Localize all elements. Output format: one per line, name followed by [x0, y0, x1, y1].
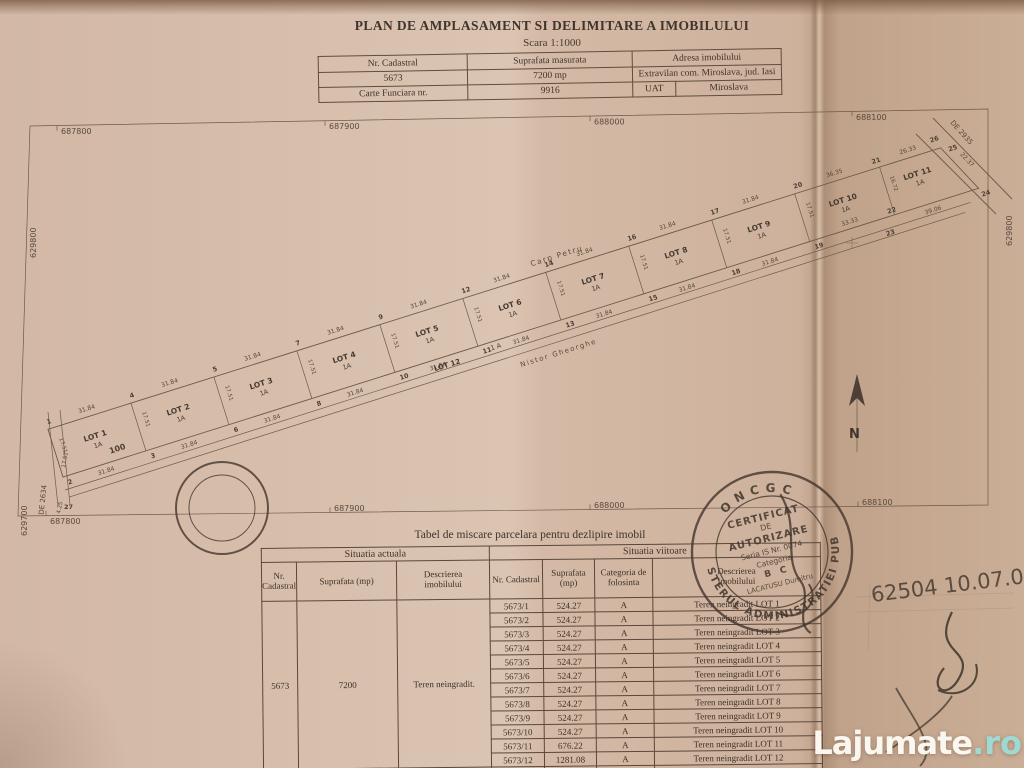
empty-cell [655, 764, 823, 768]
dim-label: 17.51 [223, 385, 233, 402]
neighbor-bottom-label: Nistor Gheorghe [519, 337, 598, 369]
grid-cross [846, 237, 858, 249]
point-label: 6 [233, 425, 240, 434]
point-label: 22 [886, 205, 897, 215]
cell-nr: 5673/10 [491, 724, 544, 739]
point-label: 1 [46, 417, 53, 426]
cell-cat: A [596, 723, 654, 738]
watermark-brand: Lajumate [812, 724, 972, 762]
cell-area: 524.27 [544, 724, 596, 739]
dim-label: 31.84 [658, 220, 677, 232]
stamp-bottom-text: ONCGC [714, 473, 802, 518]
point-label: 23 [885, 228, 896, 238]
stamp-line2: DE [759, 522, 772, 533]
dim-label: 17.51 [804, 202, 814, 219]
cell-nr: 5673/3 [490, 626, 543, 641]
point-label: 19 [814, 241, 825, 251]
point-label: 9 [378, 312, 385, 321]
svg-text:ONCGC: ONCGC [714, 473, 802, 518]
carte-funciara-value: 9916 [468, 82, 633, 100]
watermark: Lajumate.ro [812, 720, 1022, 766]
cell-area: 1281.08 [544, 752, 596, 767]
document-scale: Scara 1:1000 [302, 37, 802, 49]
point-label: 5 [212, 365, 219, 374]
lot-category: 1A [915, 177, 926, 187]
cell-area: 524.27 [544, 710, 596, 725]
lot-8: 16 15 31.84 17.51 LOT 8 1A 31.84 [626, 219, 699, 304]
col-descrierea-actual: Descrierea imobilului [396, 560, 489, 600]
dim-label: 31.84 [326, 325, 345, 337]
dim-label: 17.51 [389, 333, 399, 350]
dim-label: 31.84 [429, 361, 448, 373]
road-lot-cat: 1 A [490, 341, 503, 352]
cell-cat: A [595, 625, 653, 640]
north-label: N [849, 427, 860, 442]
dim-label: 31.84 [180, 439, 199, 451]
current-nr: 5673 [262, 601, 299, 768]
lot-4: 7 8 31.84 17.51 LOT 4 1A 31.84 [295, 324, 368, 409]
cell-cat: A [596, 695, 654, 710]
dim-label: 31.84 [409, 299, 428, 311]
grid-label: 687800 [50, 517, 81, 526]
cell-nr: 5673/4 [490, 640, 543, 655]
point-label: 8 [316, 399, 323, 408]
point-label: 17 [709, 207, 720, 217]
grid-label-right: 629800 [1005, 215, 1014, 246]
dim-label: 31.84 [243, 351, 262, 363]
dim-label: 31.84 [741, 194, 760, 206]
cell-area: 524.27 [544, 668, 596, 683]
north-arrow: N [849, 374, 865, 452]
faint-stamp [176, 462, 268, 554]
lot-category: 1A [840, 204, 851, 214]
lot-category: 1A [508, 309, 519, 319]
lot-1: 1 2 31.84 17.51 LOT 1 1A 31.84 100 [46, 398, 133, 487]
lot-name: LOT 9 [746, 219, 771, 235]
carte-funciara-label: Carte Funciara nr. [319, 85, 468, 103]
cell-area: 524.27 [544, 696, 596, 711]
road-right-label: DE 2935 [949, 119, 975, 147]
cell-cat: A [595, 597, 653, 612]
lot-9: 17 18 31.84 17.51 LOT 9 1A 31.84 [709, 193, 782, 278]
road-left-label: DE 2634 [37, 484, 48, 515]
lot-11: 21 26 25 22 23 24 26.33 LOT 11 1A 39.06 … [862, 124, 995, 238]
grid-label: 687900 [334, 504, 365, 513]
lot-name: LOT 4 [331, 350, 356, 366]
lot-6: 12 11 31.84 17.51 LOT 6 1A 31.84 [460, 272, 533, 357]
grid-label: 687900 [329, 122, 360, 131]
point-label: 15 [648, 293, 659, 303]
cell-nr: 5673/12 [491, 752, 544, 767]
lot-category: 1A [674, 257, 685, 267]
grid-labels-top: 687800 687900 688000 688100 [57, 111, 887, 136]
cell-nr: 5673/1 [490, 598, 543, 613]
col-suprafata-actual: Suprafata (mp) [296, 561, 396, 601]
dim-width: 17.51 [61, 452, 70, 469]
stamp-line1: CERTIFICAT [726, 503, 800, 531]
point-label: 7 [295, 339, 302, 348]
point-label: 21 [871, 156, 882, 166]
lot-name: LOT 10 [828, 192, 858, 209]
dim-label: 17.51 [638, 254, 648, 271]
neighbor-top-label: Carp Petru [529, 243, 584, 268]
grid-label: 688100 [856, 113, 887, 122]
col-nr-cadastral-viitor: Nr. Cadastral [489, 559, 542, 599]
cell-nr: 5673/7 [491, 682, 544, 697]
dim-label: 31.84 [263, 413, 282, 425]
point-label: 10 [399, 371, 410, 381]
point-label: 2 [67, 478, 74, 487]
cell-area: 524.27 [543, 640, 595, 655]
lot-category: 1A [176, 414, 187, 424]
cell-cat: A [596, 667, 654, 682]
grid-label: 688000 [594, 501, 625, 510]
cadastral-header-table: Nr. Cadastral Suprafata masurata Adresa … [318, 48, 783, 103]
point-label: 3 [150, 451, 157, 460]
handwritten-signature [938, 664, 977, 693]
handwritten-note: 62504 10.07.02 [870, 563, 1024, 607]
dim-label: 17.51 [57, 437, 67, 454]
lot-category: 1A [425, 335, 436, 345]
cell-cat: A [596, 709, 654, 724]
dim-label: 17.51 [306, 359, 316, 376]
grid-label-left-top: 629800 [29, 227, 38, 258]
handwritten-signature [938, 612, 963, 690]
watermark-tld: .ro [972, 724, 1022, 762]
dim-label: 17.51 [555, 280, 565, 297]
dim-label: 33.33 [841, 216, 860, 228]
dim-label: 22.37 [958, 151, 975, 169]
dim-label: 17.51 [472, 306, 482, 323]
cell-nr: 5673/5 [490, 654, 543, 669]
lot-5: 9 10 31.84 17.51 LOT 5 1A 31.84 [378, 298, 451, 383]
strip-outline [48, 141, 979, 477]
grid-label: 688000 [594, 118, 625, 127]
cell-area: 524.27 [544, 682, 596, 697]
lot-name: LOT 8 [663, 245, 688, 261]
dim-label: 31.84 [492, 272, 511, 284]
point-label: 11 [482, 345, 493, 355]
col-suprafata-viitor: Suprafata (mp) [542, 559, 594, 599]
lot-name: LOT 3 [248, 376, 273, 392]
uat-value: Miroslava [676, 79, 782, 96]
road-de2634: DE 2634 27 4.25 17.51 [37, 410, 73, 515]
point-label: 16 [626, 233, 637, 243]
plan-frame [18, 109, 988, 516]
dim-label: 26.33 [899, 144, 918, 156]
grid-label: 688100 [862, 498, 893, 507]
lot-strip: 1 2 31.84 17.51 LOT 1 1A 31.84 100 4 3 3… [41, 121, 999, 511]
lot-2: 4 3 31.84 17.51 LOT 2 1A 31.84 [129, 376, 202, 461]
cell-area: 524.27 [543, 612, 595, 627]
point-label: 12 [460, 285, 471, 295]
lot-category: 1A [342, 361, 353, 371]
col-categoria: Categoria de folosinta [594, 558, 652, 598]
lot-name: LOT 5 [414, 323, 439, 339]
dim-label: 16.72 [888, 175, 898, 192]
dim-label: 31.84 [678, 282, 697, 294]
cell-nr: 5673/6 [491, 668, 544, 683]
lot-name: LOT 11 [902, 165, 932, 182]
cell-area: 524.27 [543, 626, 595, 641]
cell-nr: 5673/11 [491, 738, 544, 753]
title-block: PLAN DE AMPLASAMENT SI DELIMITARE A IMOB… [302, 18, 802, 49]
lot-3: 5 6 31.84 17.51 LOT 3 1A 31.84 [212, 350, 285, 435]
cell-nr: 5673/2 [490, 612, 543, 627]
lot-name: LOT 2 [165, 402, 190, 418]
dim-label: 31.84 [595, 308, 614, 320]
current-area: 7200 [297, 600, 399, 768]
col-descrierea-viitor: Descrierea imobilului [652, 557, 820, 598]
point-label: 4 [129, 391, 136, 400]
lot-category: 1A [93, 440, 104, 450]
point-label: 14 [543, 259, 554, 269]
move-table-title: Tabel de miscare parcelara pentru dezlip… [300, 529, 760, 541]
cell-area: 524.27 [543, 654, 595, 669]
dim-label: 31.84 [160, 377, 179, 389]
grid-label: 687800 [61, 127, 92, 136]
dim-label: 31.84 [512, 334, 531, 346]
road-lot-edge [64, 202, 971, 490]
lot-category: 1A [259, 387, 270, 397]
dim-4-25: 4.25 [56, 501, 65, 515]
uat-label: UAT [633, 81, 676, 97]
lot-name: LOT 7 [580, 271, 605, 287]
dim-label: 31.84 [575, 246, 594, 258]
point-label: 26 [929, 134, 940, 144]
dim-label: 31.84 [346, 387, 365, 399]
lot-name: LOT 1 [82, 428, 107, 444]
dim-label: 31.84 [77, 403, 96, 415]
cell-cat: A [595, 639, 653, 654]
cell-cat: A [596, 751, 654, 766]
point-label: 24 [980, 188, 991, 198]
neighbor-boundary [69, 212, 966, 497]
point-label: 13 [565, 319, 576, 329]
dim-label: 17.51 [140, 411, 150, 428]
road-de2935: DE 2935 [916, 118, 1012, 214]
dim-label: 31.84 [761, 256, 780, 268]
ghost-lines [856, 583, 1014, 650]
parcel-movement-table: Situatia actuala Situatia viitoare Nr. C… [261, 542, 823, 768]
point-label: 25 [947, 143, 958, 153]
cell-cat: A [596, 737, 654, 752]
cell-area: 676.22 [544, 738, 596, 753]
grid-label-left-bottom: 629700 [20, 505, 29, 536]
current-desc: Teren neingradit. [397, 599, 492, 768]
lot-name: LOT 6 [497, 297, 522, 313]
cell-area: 524.27 [543, 598, 595, 613]
column-headers: Nr. Cadastral Suprafata (mp) Descrierea … [261, 557, 820, 602]
lot-category: 1A [591, 283, 602, 293]
cell-cat: A [595, 653, 653, 668]
document-title: PLAN DE AMPLASAMENT SI DELIMITARE A IMOB… [302, 18, 802, 34]
cell-cat: A [595, 611, 653, 626]
dim-label: 36.35 [825, 168, 844, 180]
cell-cat: A [596, 681, 654, 696]
road-lot-name: LOT 12 [433, 357, 461, 373]
grid-labels-bottom: 687800 687900 688000 688100 [46, 498, 893, 526]
dim-label: 31.84 [97, 465, 116, 477]
lot-10: 20 19 36.35 17.51 LOT 10 1A 33.33 16.72 [792, 153, 908, 251]
col-nr-cadastral-actual: Nr. Cadastral [261, 562, 296, 601]
cell-nr: 5673/8 [491, 696, 544, 711]
point-label: 18 [731, 267, 742, 277]
cell-nr: 5673/9 [491, 710, 544, 725]
dim-label: 39.06 [924, 205, 943, 217]
parcel-ref: 100 [108, 442, 127, 456]
point-27: 27 [64, 503, 73, 511]
lot-category: 1A [756, 230, 767, 240]
point-label: 20 [792, 180, 803, 190]
scanned-cadastral-document: PLAN DE AMPLASAMENT SI DELIMITARE A IMOB… [0, 0, 1024, 768]
lot-7: 14 13 31.84 17.51 LOT 7 1A 31.84 [543, 245, 616, 330]
dim-label: 17.51 [721, 228, 731, 245]
